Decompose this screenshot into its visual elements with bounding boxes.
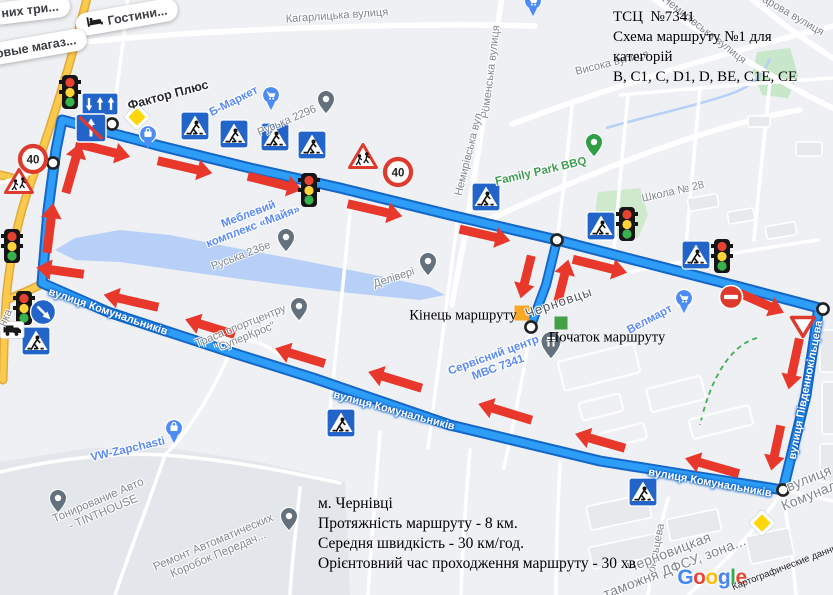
street-label: Черновцы xyxy=(524,285,595,322)
street-label: Школа № 28 xyxy=(641,179,706,205)
route-title-annotation: ТСЦ №7341 Схема маршруту №1 для категорі… xyxy=(613,7,833,87)
route-categories-line: В, С1, С, D1, D, ВЕ, С1Е, СЕ xyxy=(613,67,833,87)
start-of-route-label: Початок маршруту xyxy=(549,330,665,347)
bed-icon xyxy=(86,14,104,29)
street-label: вулицяКомунал... xyxy=(773,458,833,514)
end-of-route-label: Кінець маршруту xyxy=(409,308,517,325)
google-logo-letter: o xyxy=(693,566,705,589)
poi-label: Фактор Плюс xyxy=(126,78,210,113)
route-length-line: Протяжність маршруту - 8 км. xyxy=(318,514,636,534)
poi-label: Б-Маркет xyxy=(208,84,261,119)
route-duration-line: Орієнтовний час проходження маршруту - 3… xyxy=(318,554,636,574)
street-label: нка xyxy=(0,308,15,329)
route-speed-line: Середня швидкість - 30 км/год. xyxy=(318,534,636,554)
poi-label: Family Park BBQ xyxy=(494,155,588,189)
poi-label: Ремонт АвтоматическихКоробок Передач... xyxy=(152,512,281,586)
street-label: Немирівська вул... xyxy=(453,103,488,197)
route-scheme-line: Схема маршруту №1 для категорій xyxy=(613,27,833,67)
tsc-number: ТСЦ №7341 xyxy=(613,7,833,27)
poi-label: Тонирование Авто- TINTHOUSE xyxy=(51,476,151,538)
street-label: Кагарлицька вулиця xyxy=(285,6,388,25)
map-canvas[interactable]: 40 xyxy=(0,0,833,595)
google-logo-letter: g xyxy=(718,566,730,589)
route-info-annotation: м. Чернівці Протяжність маршруту - 8 км.… xyxy=(318,494,636,574)
poi-label: Сервісний центрМВС 7341 xyxy=(447,334,546,391)
poi-pill[interactable]: них три... xyxy=(0,0,71,26)
street-label-on-route: вулиця Комунальників xyxy=(332,389,456,433)
google-logo-letter: G xyxy=(677,566,693,589)
google-logo-letter: o xyxy=(705,566,717,589)
poi-pill[interactable]: овые магаз... xyxy=(0,27,89,67)
street-label: Руська 2296 xyxy=(256,103,318,139)
street-label: Делівері xyxy=(372,266,416,291)
street-label-on-route: вулиця Комунальників xyxy=(47,286,169,338)
poi-label: Меблевийкомплекс «Майя» xyxy=(200,191,302,251)
route-city-line: м. Чернівці xyxy=(318,494,636,514)
street-label-on-route: вулиця Південнокільцева xyxy=(786,320,825,461)
poi-label: VW-Zapchasti xyxy=(90,435,167,465)
street-label: Траса спортцентру"СуперКрос" xyxy=(194,303,293,362)
poi-pill[interactable]: Гостини... xyxy=(74,0,180,37)
street-label-on-route: вулиця Комунальників xyxy=(647,466,772,500)
